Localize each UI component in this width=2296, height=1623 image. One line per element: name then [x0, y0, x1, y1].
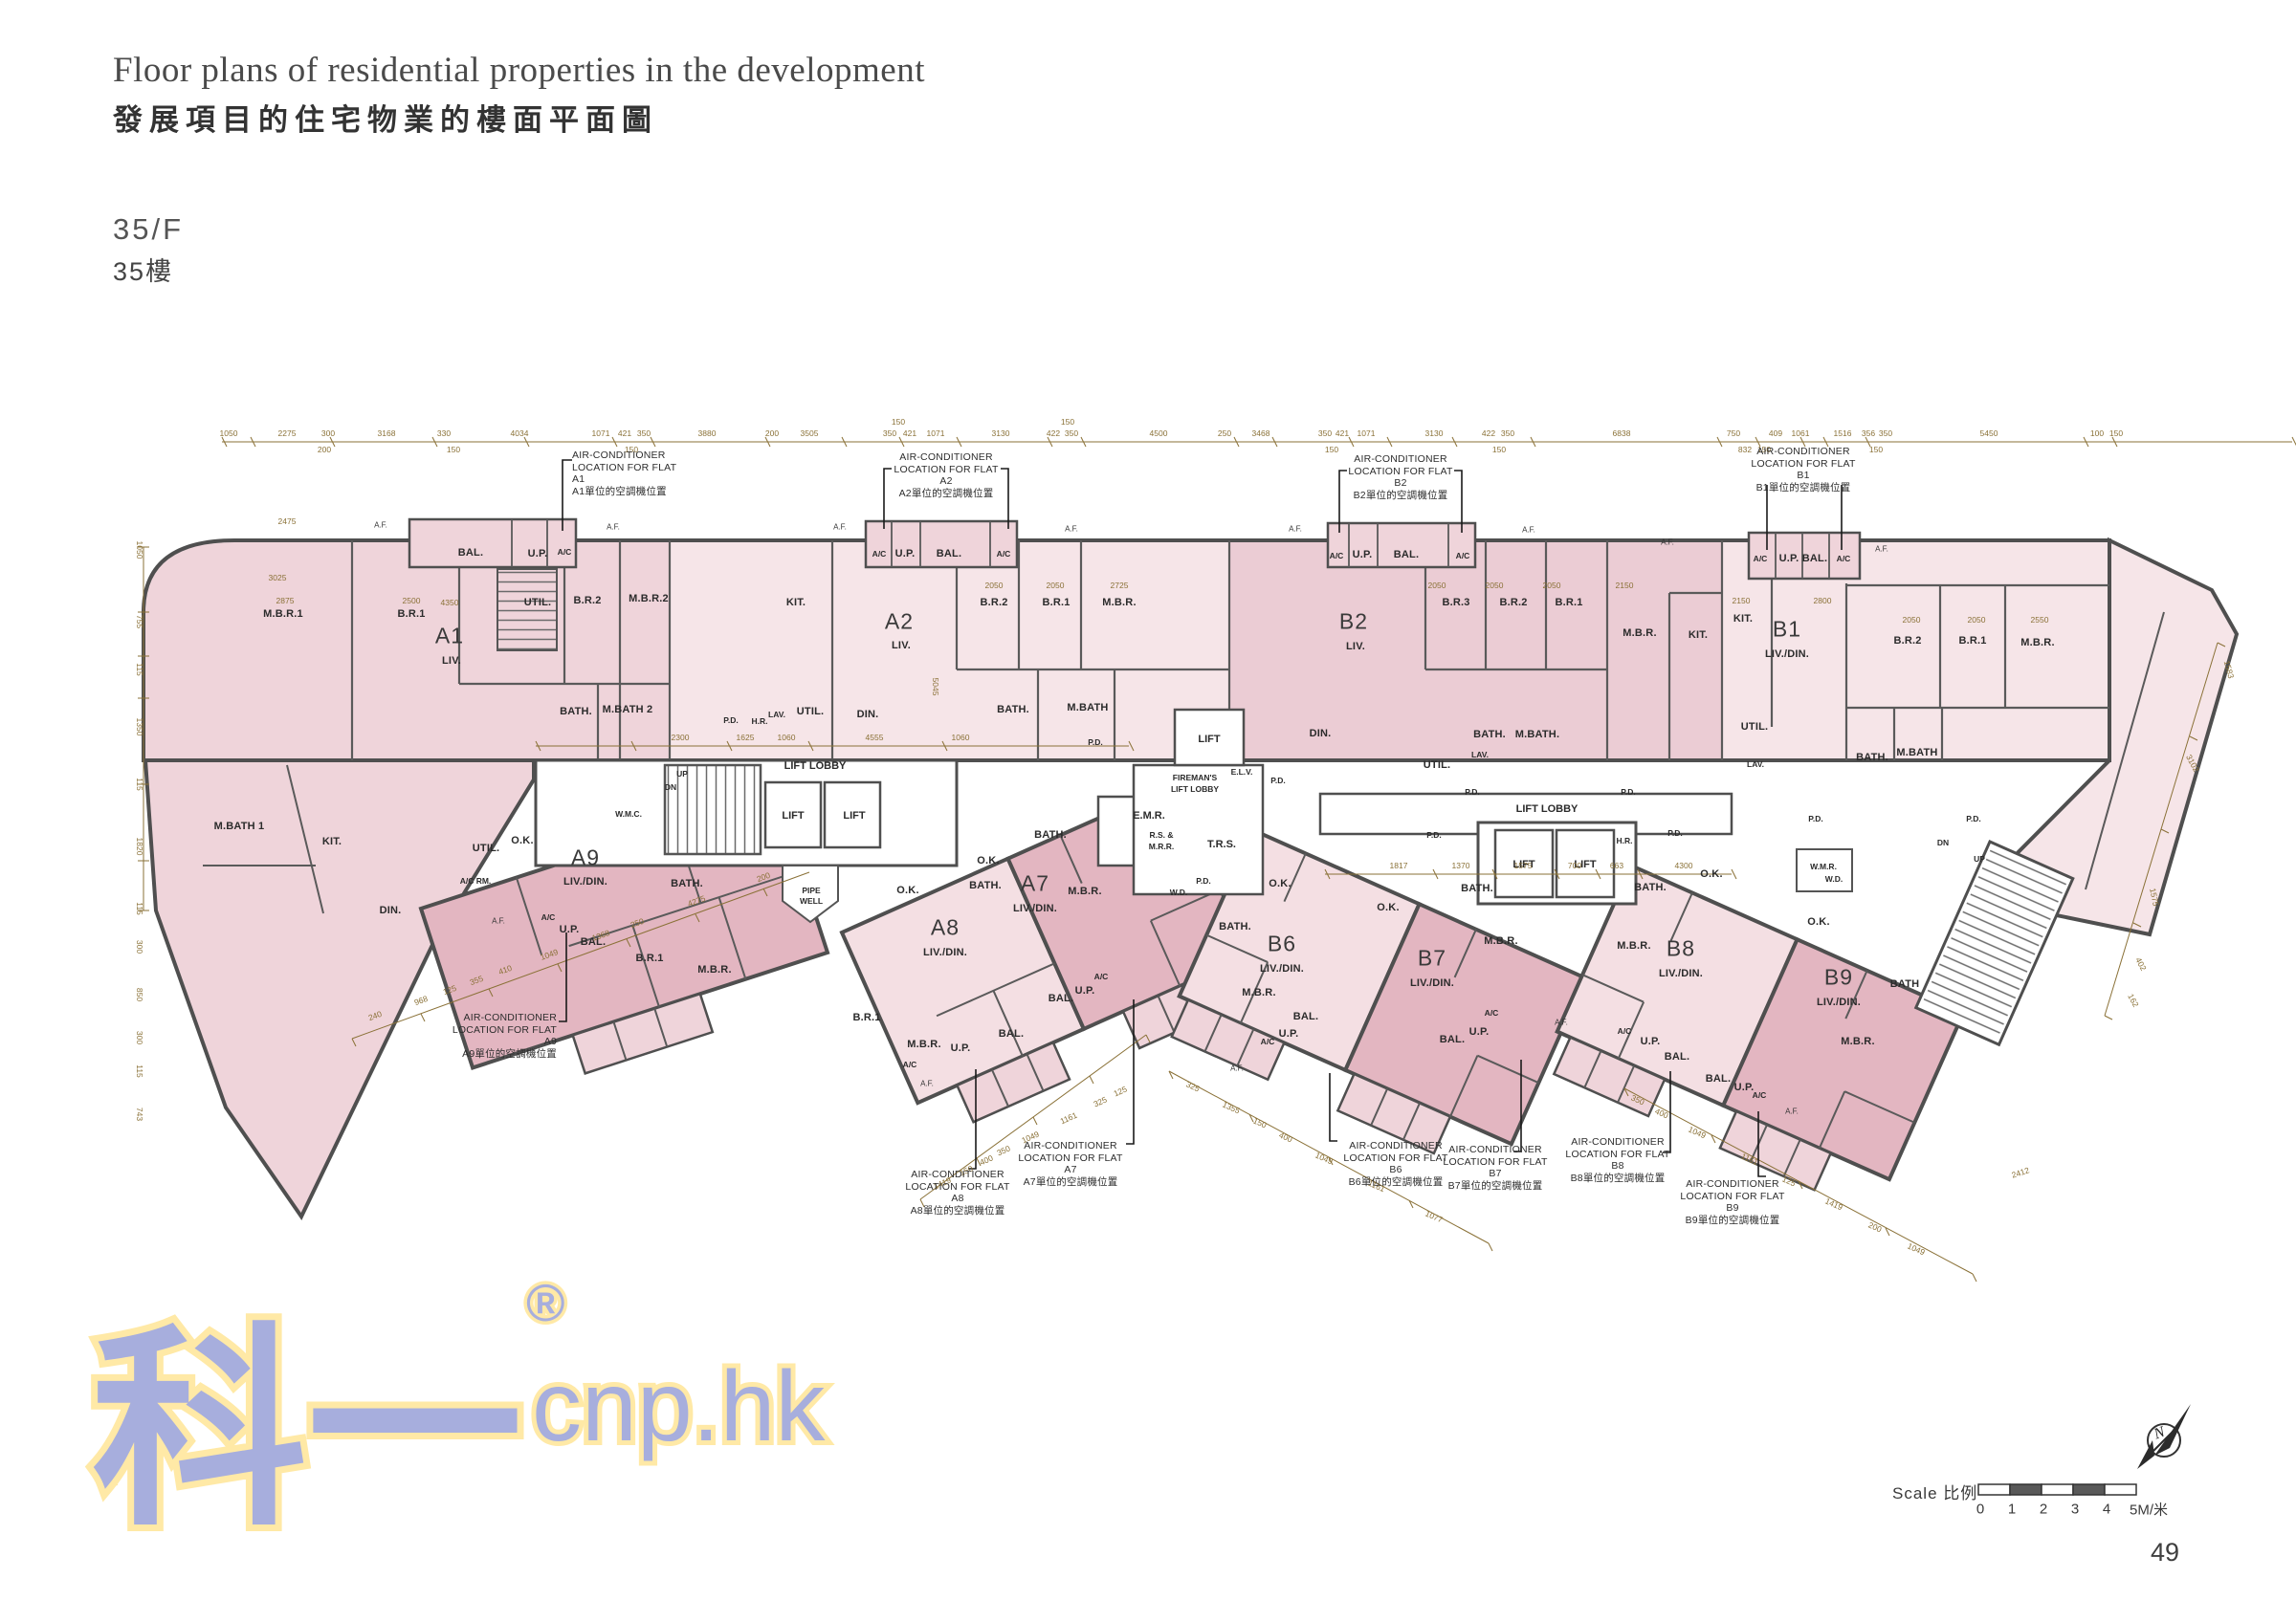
- ac-callout-a9: AIR-CONDITIONERLOCATION FOR FLAT A9A9單位的…: [442, 1012, 557, 1060]
- watermark-logo: 科一 科一 ® ® cnp.hk cnp.hk: [84, 1264, 1003, 1532]
- ac-callout-b2: AIR-CONDITIONERLOCATION FOR FLAT B2B2單位的…: [1342, 453, 1459, 501]
- callout-line: AIR-CONDITIONER: [899, 1169, 1016, 1181]
- lift-shaft: [825, 782, 880, 847]
- callout-line: B1單位的空調機位置: [1747, 482, 1860, 494]
- floor-label: 35/F: [113, 212, 184, 247]
- stair-right: [1916, 842, 2073, 1044]
- callout-line: LOCATION FOR FLAT A2: [888, 464, 1004, 488]
- callout-line: AIR-CONDITIONER: [1437, 1144, 1554, 1156]
- callout-line: A2單位的空調機位置: [888, 488, 1004, 500]
- callout-line: AIR-CONDITIONER: [1674, 1178, 1791, 1191]
- floor-label-chinese: 35樓: [113, 251, 173, 288]
- ac-callout-a8: AIR-CONDITIONERLOCATION FOR FLAT A8A8單位的…: [899, 1169, 1016, 1217]
- page-title-chinese: 發展項目的住宅物業的樓面平面圖: [113, 96, 658, 139]
- scale-label: Scale 比例: [1892, 1480, 1977, 1503]
- lift-shaft: [1495, 830, 1553, 897]
- watermark-chinese: 科一: [92, 1255, 522, 1567]
- scale-bar: [1978, 1484, 2136, 1495]
- ac-callout-a7: AIR-CONDITIONERLOCATION FOR FLAT A7A7單位的…: [1012, 1140, 1129, 1188]
- callout-line: AIR-CONDITIONER: [1747, 446, 1860, 458]
- stair-left: [665, 765, 761, 854]
- ac-callout-b7: AIR-CONDITIONERLOCATION FOR FLAT B7B7單位的…: [1437, 1144, 1554, 1192]
- callout-line: LOCATION FOR FLAT A1: [572, 462, 689, 486]
- ac-callout-a1: AIR-CONDITIONERLOCATION FOR FLAT A1A1單位的…: [572, 450, 689, 497]
- callout-line: A7單位的空調機位置: [1012, 1176, 1129, 1189]
- lift-shaft: [765, 782, 821, 847]
- callout-line: LOCATION FOR FLAT B9: [1674, 1191, 1791, 1215]
- callout-line: LOCATION FOR FLAT B8: [1559, 1149, 1676, 1173]
- page-number: 49: [2151, 1538, 2179, 1568]
- callout-line: A1單位的空調機位置: [572, 486, 689, 498]
- callout-line: AIR-CONDITIONER: [572, 450, 689, 462]
- callout-line: AIR-CONDITIONER: [1559, 1136, 1676, 1149]
- callout-line: AIR-CONDITIONER: [442, 1012, 557, 1024]
- fireman-lift: [1175, 710, 1244, 765]
- ac-callout-b1: AIR-CONDITIONERLOCATION FOR FLAT B1B1單位的…: [1747, 446, 1860, 493]
- callout-line: B8單位的空調機位置: [1559, 1173, 1676, 1185]
- callout-line: B2單位的空調機位置: [1342, 490, 1459, 502]
- callout-line: B7單位的空調機位置: [1437, 1180, 1554, 1193]
- callout-line: AIR-CONDITIONER: [888, 451, 1004, 464]
- watermark-domain: cnp.hk: [532, 1350, 825, 1464]
- lift-shaft: [1556, 830, 1614, 897]
- callout-line: B9單位的空調機位置: [1674, 1215, 1791, 1227]
- callout-line: A9單位的空調機位置: [442, 1048, 557, 1061]
- callout-line: AIR-CONDITIONER: [1012, 1140, 1129, 1152]
- callout-line: A8單位的空調機位置: [899, 1205, 1016, 1217]
- callout-line: LOCATION FOR FLAT B7: [1437, 1156, 1554, 1180]
- ac-callout-b8: AIR-CONDITIONERLOCATION FOR FLAT B8B8單位的…: [1559, 1136, 1676, 1184]
- page-title: Floor plans of residential properties in…: [113, 50, 925, 91]
- callout-line: LOCATION FOR FLAT B2: [1342, 466, 1459, 490]
- ac-callout-a2: AIR-CONDITIONERLOCATION FOR FLAT A2A2單位的…: [888, 451, 1004, 499]
- callout-line: LOCATION FOR FLAT A7: [1012, 1152, 1129, 1176]
- registered-mark-icon: ®: [526, 1272, 565, 1333]
- brochure-page: { "header": { "title_en": "Floor plans o…: [0, 0, 2296, 1623]
- callout-line: LOCATION FOR FLAT A8: [899, 1181, 1016, 1205]
- callout-line: AIR-CONDITIONER: [1342, 453, 1459, 466]
- callout-line: LOCATION FOR FLAT B1: [1747, 458, 1860, 482]
- ac-callout-b9: AIR-CONDITIONERLOCATION FOR FLAT B9B9單位的…: [1674, 1178, 1791, 1226]
- callout-line: LOCATION FOR FLAT A9: [442, 1024, 557, 1048]
